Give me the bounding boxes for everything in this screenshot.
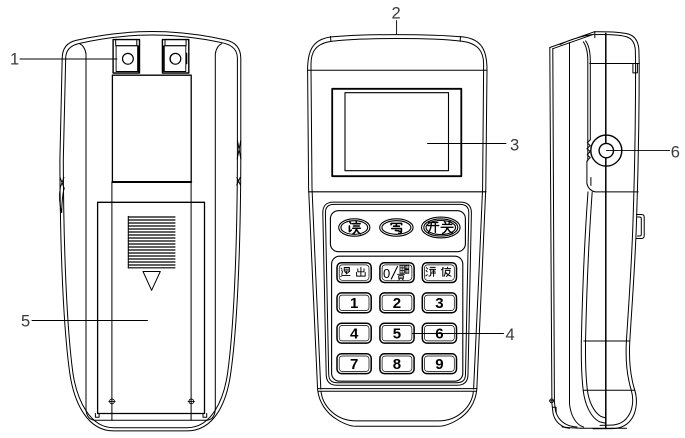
- svg-text:0: 0: [383, 266, 390, 281]
- svg-text:6: 6: [435, 326, 443, 343]
- svg-text:2: 2: [393, 295, 401, 312]
- svg-text:2: 2: [392, 5, 401, 23]
- svg-text:4: 4: [350, 326, 359, 343]
- svg-text:1: 1: [350, 295, 358, 312]
- svg-text:3: 3: [435, 295, 443, 312]
- svg-text:9: 9: [435, 356, 443, 373]
- svg-text:6: 6: [671, 144, 680, 162]
- svg-text:5: 5: [21, 313, 30, 331]
- svg-text:7: 7: [350, 356, 358, 373]
- svg-text:1: 1: [10, 51, 19, 69]
- svg-text:8: 8: [393, 356, 401, 373]
- svg-text:4: 4: [506, 326, 515, 344]
- svg-text:5: 5: [393, 326, 401, 343]
- svg-text:3: 3: [510, 137, 519, 155]
